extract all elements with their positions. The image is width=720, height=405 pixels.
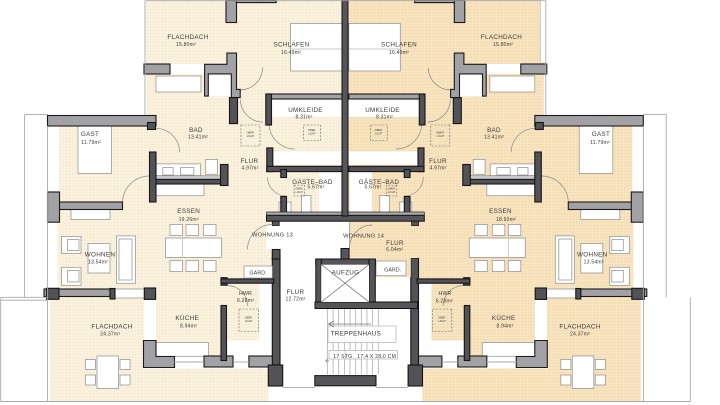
- svg-text:13.54m²: 13.54m²: [584, 260, 604, 266]
- svg-text:OBER.: OBER.: [308, 128, 316, 132]
- svg-text:6.04m²: 6.04m²: [386, 247, 403, 253]
- svg-text:15.80m²: 15.80m²: [176, 42, 196, 48]
- svg-text:OBER.: OBER.: [246, 131, 254, 135]
- svg-text:11.79m²: 11.79m²: [590, 140, 610, 146]
- svg-text:13.54m²: 13.54m²: [88, 260, 108, 266]
- svg-text:ESSEN: ESSEN: [177, 208, 200, 215]
- svg-text:WOHNEN: WOHNEN: [577, 252, 608, 259]
- svg-text:HWR: HWR: [439, 291, 452, 297]
- svg-text:8.31m²: 8.31m²: [376, 114, 393, 120]
- svg-text:LICHT: LICHT: [295, 190, 303, 194]
- svg-text:15.80m²: 15.80m²: [493, 42, 513, 48]
- svg-text:GARD.: GARD.: [249, 270, 266, 276]
- svg-text:OBER.: OBER.: [245, 316, 253, 320]
- svg-text:FLUR: FLUR: [241, 158, 259, 165]
- svg-text:OBER.: OBER.: [436, 131, 444, 135]
- svg-text:KÜCHE: KÜCHE: [492, 314, 516, 322]
- svg-text:FLACHDACH: FLACHDACH: [167, 34, 208, 41]
- svg-text:18.93m²: 18.93m²: [496, 217, 516, 223]
- svg-text:24.37m²: 24.37m²: [570, 332, 590, 338]
- svg-text:GAST: GAST: [592, 131, 610, 138]
- svg-text:OBER.: OBER.: [295, 187, 303, 191]
- svg-text:LICHT: LICHT: [375, 132, 383, 136]
- svg-text:BAD: BAD: [487, 127, 501, 134]
- svg-text:16.49m²: 16.49m²: [389, 50, 409, 56]
- svg-text:GARD.: GARD.: [384, 268, 401, 274]
- svg-text:8.94m²: 8.94m²: [496, 324, 513, 330]
- svg-text:24.37m²: 24.37m²: [100, 332, 120, 338]
- svg-text:WOHNUNG 14: WOHNUNG 14: [343, 234, 384, 240]
- svg-text:FLACHDACH: FLACHDACH: [481, 34, 522, 41]
- svg-text:17 STG. 17,4 X 28,0 CM: 17 STG. 17,4 X 28,0 CM: [333, 354, 396, 360]
- svg-text:13.41m²: 13.41m²: [484, 135, 504, 141]
- svg-text:16.49m²: 16.49m²: [281, 50, 301, 56]
- svg-text:FLUR: FLUR: [386, 240, 404, 247]
- svg-text:4.97m²: 4.97m²: [241, 165, 258, 171]
- svg-text:LICHT: LICHT: [247, 134, 255, 138]
- svg-text:8.94m²: 8.94m²: [180, 324, 197, 330]
- svg-text:11.79m²: 11.79m²: [81, 140, 101, 146]
- svg-text:LICHT: LICHT: [388, 190, 396, 194]
- svg-text:FLACHDACH: FLACHDACH: [559, 324, 600, 331]
- svg-text:6.28m²: 6.28m²: [237, 298, 254, 304]
- svg-text:UMKLEIDE: UMKLEIDE: [365, 107, 400, 114]
- svg-text:FLUR: FLUR: [287, 289, 305, 296]
- svg-text:LICHT: LICHT: [438, 319, 446, 323]
- svg-text:LICHT: LICHT: [308, 132, 316, 136]
- svg-text:GAST: GAST: [81, 131, 99, 138]
- svg-text:13.41m²: 13.41m²: [188, 135, 208, 141]
- svg-text:OBER.: OBER.: [388, 187, 396, 191]
- svg-text:TREPPENHAUS: TREPPENHAUS: [331, 331, 382, 338]
- svg-text:HWR: HWR: [239, 291, 252, 297]
- svg-text:LICHT: LICHT: [245, 319, 253, 323]
- svg-text:OBER.: OBER.: [375, 128, 383, 132]
- svg-text:5.67m²: 5.67m²: [307, 184, 324, 190]
- svg-text:19.26m²: 19.26m²: [179, 217, 199, 223]
- svg-text:OBER.: OBER.: [438, 316, 446, 320]
- svg-text:12.72m²: 12.72m²: [285, 297, 305, 303]
- svg-text:8.31m²: 8.31m²: [295, 114, 312, 120]
- svg-text:BAD: BAD: [189, 127, 203, 134]
- svg-text:KÜCHE: KÜCHE: [175, 314, 199, 322]
- svg-text:FLUR: FLUR: [429, 158, 447, 165]
- svg-text:AUFZUG: AUFZUG: [332, 270, 360, 277]
- svg-text:WOHNUNG 13: WOHNUNG 13: [252, 233, 293, 239]
- svg-text:WOHNEN: WOHNEN: [85, 252, 116, 259]
- svg-text:LICHT: LICHT: [437, 134, 445, 138]
- svg-text:UMKLEIDE: UMKLEIDE: [288, 107, 323, 114]
- svg-text:6.28m²: 6.28m²: [436, 299, 453, 305]
- svg-text:ESSEN: ESSEN: [489, 208, 512, 215]
- svg-text:SCHLAFEN: SCHLAFEN: [274, 42, 310, 49]
- svg-text:FLACHDACH: FLACHDACH: [91, 324, 132, 331]
- svg-text:5.67m²: 5.67m²: [364, 184, 381, 190]
- svg-text:4.97m²: 4.97m²: [429, 165, 446, 171]
- svg-text:SCHLAFEN: SCHLAFEN: [381, 42, 417, 49]
